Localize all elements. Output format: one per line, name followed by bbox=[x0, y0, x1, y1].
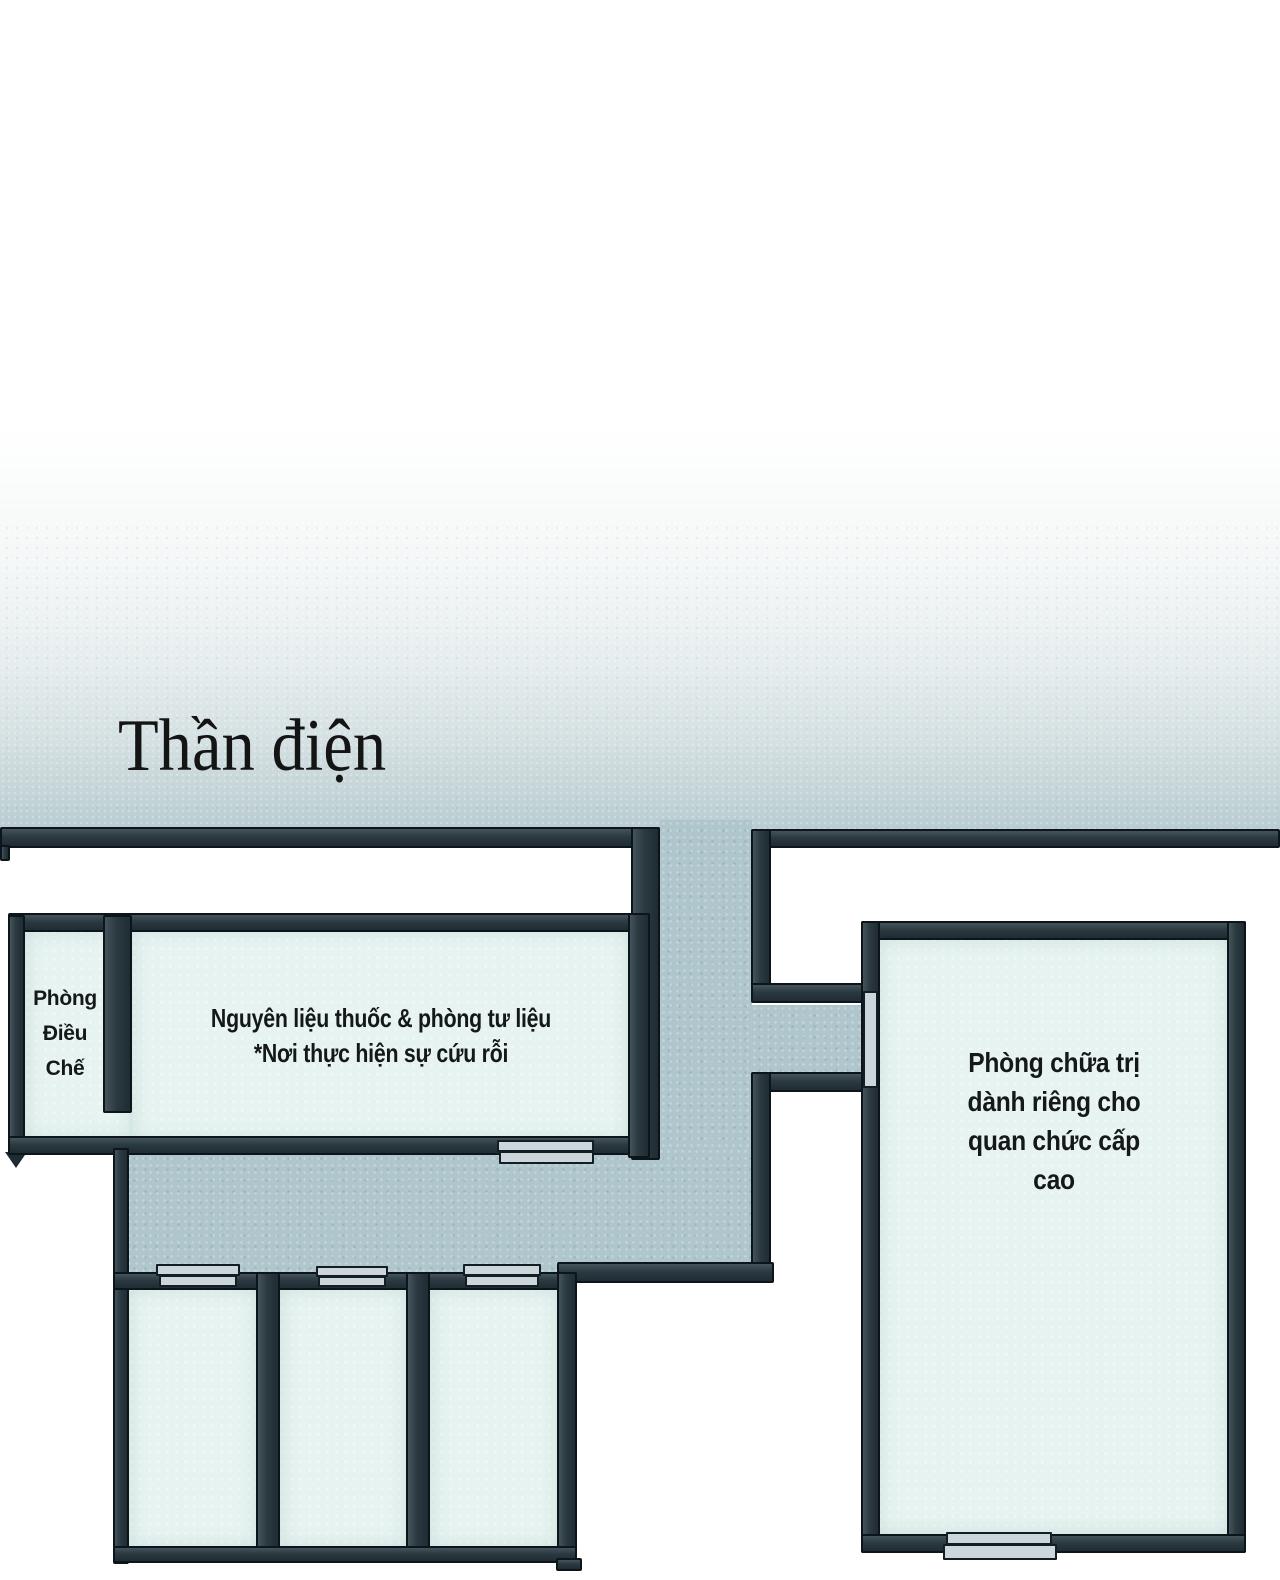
corridor-passage-to-treatment bbox=[751, 1005, 871, 1077]
cell-2-door-bar-inner bbox=[318, 1276, 386, 1287]
preparation-room-label-line-1: Phòng bbox=[16, 981, 114, 1016]
treatment-room-label-line-4: cao bbox=[899, 1160, 1209, 1199]
materials-room-label-line-1: Nguyên liệu thuốc & phòng tư liệu bbox=[183, 1001, 578, 1036]
cell-1-door-bar-inner bbox=[159, 1275, 237, 1287]
corridor-vertical bbox=[660, 820, 752, 1160]
wall-cells-left bbox=[113, 1148, 129, 1564]
wall-corridor-bottom bbox=[557, 1262, 774, 1283]
wall-right-lower-vertical bbox=[751, 1072, 771, 1283]
cell-room-2-floor bbox=[278, 1286, 410, 1550]
page-title: Thần điện bbox=[118, 704, 386, 789]
background-texture bbox=[0, 520, 1280, 848]
wall-cells-right bbox=[557, 1272, 577, 1562]
cell-3-door-bar-inner bbox=[465, 1275, 539, 1287]
cell-room-1-floor bbox=[127, 1286, 260, 1550]
treatment-room-label-line-3: quan chức cấp bbox=[899, 1121, 1209, 1160]
cell-room-3-floor bbox=[428, 1286, 562, 1550]
wall-treatment-right bbox=[1227, 921, 1246, 1553]
treatment-room-bottom-door-bar-inner bbox=[943, 1544, 1057, 1560]
wall-top-left bbox=[0, 827, 660, 848]
corridor-lower bbox=[126, 1148, 758, 1275]
preparation-room-label-line-2: Điều bbox=[16, 1016, 114, 1051]
wall-right-upper-vertical bbox=[751, 829, 771, 991]
wall-materials-right bbox=[628, 913, 650, 1158]
treatment-room-left-door bbox=[863, 991, 878, 1088]
preparation-room-label: Phòng Điều Chế bbox=[16, 981, 114, 1086]
materials-room-label: Nguyên liệu thuốc & phòng tư liệu *Nơi t… bbox=[183, 1001, 578, 1071]
materials-room-label-line-2: *Nơi thực hiện sự cứu rỗi bbox=[183, 1036, 578, 1071]
wall-top-left-stub bbox=[0, 845, 10, 861]
wall-cells-bottom-stub bbox=[556, 1558, 582, 1571]
treatment-room-label-line-2: dành riêng cho bbox=[899, 1082, 1209, 1121]
wall-cells-divider-1 bbox=[256, 1272, 280, 1562]
treatment-room-label-line-1: Phòng chữa trị bbox=[899, 1043, 1209, 1082]
treatment-room-floor bbox=[876, 936, 1231, 1536]
wall-right-upper-horizontal bbox=[751, 983, 869, 1003]
preparation-room-label-line-3: Chế bbox=[16, 1051, 114, 1086]
treatment-room-label: Phòng chữa trị dành riêng cho quan chức … bbox=[899, 1043, 1209, 1199]
wall-cells-divider-2 bbox=[406, 1272, 430, 1562]
wall-top-right bbox=[751, 829, 1280, 848]
floor-plan-page: Thần điện Phòng Điều Chế Nguyên liệu thu… bbox=[0, 0, 1280, 1580]
wall-treatment-top bbox=[861, 921, 1246, 940]
materials-room-door-bar-inner bbox=[499, 1151, 594, 1164]
wall-cells-bottom bbox=[113, 1546, 577, 1563]
